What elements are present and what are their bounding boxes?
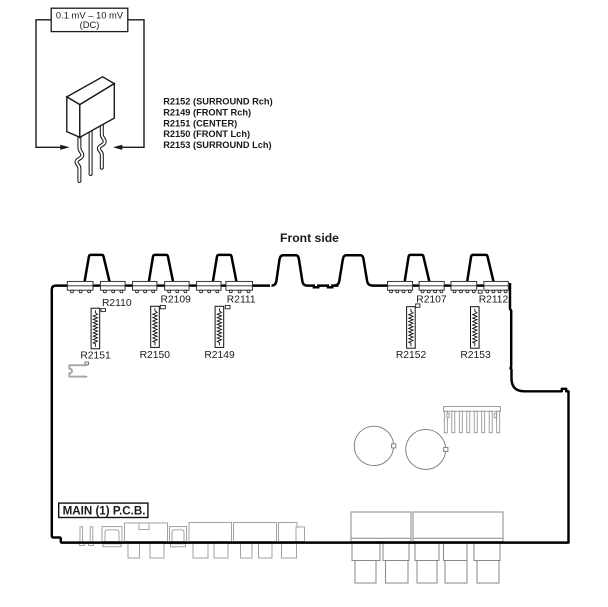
svg-text:R2153 (SURROUND Lch): R2153 (SURROUND Lch) (163, 140, 271, 150)
svg-text:R2109: R2109 (161, 295, 192, 306)
svg-text:R2112: R2112 (479, 295, 509, 306)
svg-text:R2151: R2151 (80, 351, 111, 362)
svg-text:R2152 (SURROUND Rch): R2152 (SURROUND Rch) (163, 97, 272, 107)
svg-text:R2110: R2110 (102, 298, 132, 309)
svg-text:R2149: R2149 (204, 350, 235, 361)
svg-text:R2111: R2111 (227, 295, 256, 306)
svg-text:R2107: R2107 (416, 295, 447, 306)
svg-text:R2151 (CENTER): R2151 (CENTER) (163, 118, 237, 128)
svg-text:R2150: R2150 (140, 350, 171, 361)
svg-text:Front side: Front side (280, 231, 339, 245)
svg-text:(DC): (DC) (80, 19, 100, 30)
svg-text:R2152: R2152 (396, 350, 427, 361)
svg-text:R2149 (FRONT Rch): R2149 (FRONT Rch) (163, 107, 251, 117)
svg-text:R2150 (FRONT Lch): R2150 (FRONT Lch) (163, 129, 250, 139)
svg-text:MAIN (1) P.C.B.: MAIN (1) P.C.B. (63, 504, 146, 517)
svg-text:R2153: R2153 (460, 350, 491, 361)
